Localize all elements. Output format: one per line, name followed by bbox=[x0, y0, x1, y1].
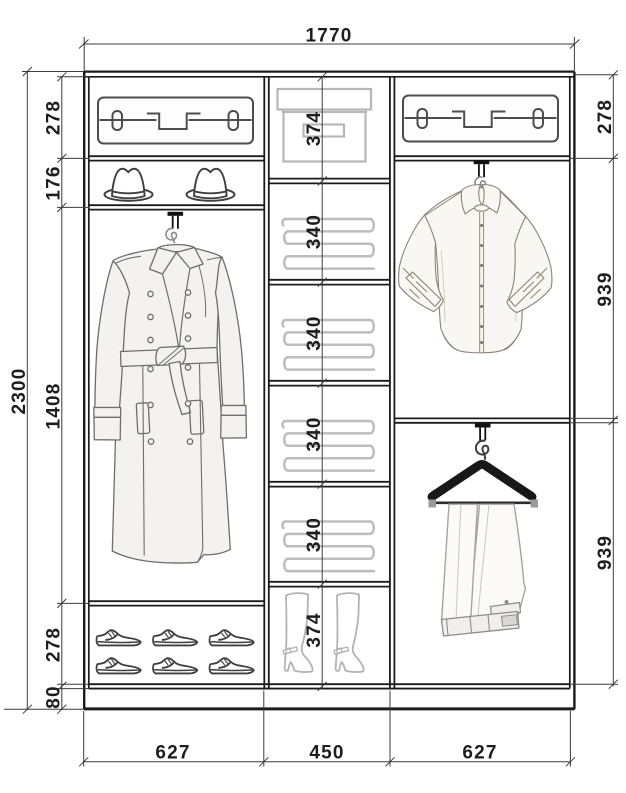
svg-text:340: 340 bbox=[304, 315, 325, 350]
svg-text:340: 340 bbox=[304, 214, 325, 249]
svg-text:340: 340 bbox=[304, 416, 325, 451]
svg-text:450: 450 bbox=[309, 743, 344, 764]
svg-text:939: 939 bbox=[595, 535, 616, 570]
svg-text:278: 278 bbox=[595, 99, 616, 134]
svg-text:278: 278 bbox=[44, 100, 65, 135]
svg-text:176: 176 bbox=[44, 165, 65, 200]
svg-text:2300: 2300 bbox=[9, 367, 30, 414]
svg-text:374: 374 bbox=[304, 612, 325, 647]
svg-text:1408: 1408 bbox=[44, 382, 65, 429]
svg-text:627: 627 bbox=[155, 743, 190, 764]
svg-text:939: 939 bbox=[595, 271, 616, 306]
svg-text:627: 627 bbox=[462, 743, 497, 764]
svg-text:1770: 1770 bbox=[305, 26, 352, 47]
svg-text:80: 80 bbox=[44, 685, 65, 709]
svg-text:340: 340 bbox=[304, 517, 325, 552]
svg-text:278: 278 bbox=[44, 627, 65, 662]
svg-text:374: 374 bbox=[304, 111, 325, 146]
